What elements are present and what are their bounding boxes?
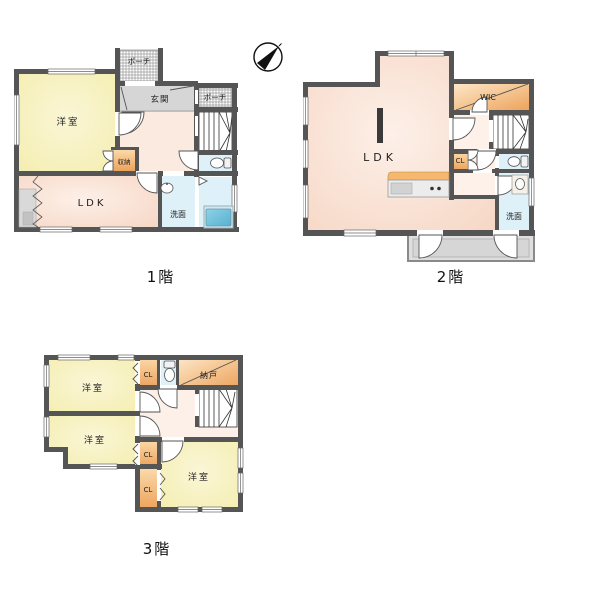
north-arrow-icon — [250, 38, 288, 76]
label-ldk-1f: LDK — [78, 198, 107, 209]
label-yoshitsu-1f: 洋室 — [56, 116, 79, 128]
label-genkan: 玄関 — [150, 94, 169, 105]
bathtub-icon — [204, 206, 233, 228]
stairs-icon-1f — [199, 112, 232, 152]
toilet-icon-3f — [164, 361, 175, 382]
floor2-caption: 2階 — [416, 266, 486, 287]
label-senmen-1f: 洗面 — [170, 209, 186, 219]
floor3-caption: 3階 — [122, 538, 192, 559]
kitchen-counter-icon-2f — [388, 172, 449, 197]
label-porch-right: ポーチ — [204, 93, 227, 102]
label-yoshitsu2-3f: 洋室 — [84, 434, 106, 446]
label-cl-2f: CL — [456, 157, 465, 165]
floor1-plan: 洋室 LDK 玄関 ポーチ ポーチ 収納 洗面 — [14, 44, 242, 238]
label-cl-mid: CL — [144, 451, 153, 459]
label-senmen-2f: 洗面 — [506, 211, 522, 221]
stairs-icon-3f — [199, 389, 237, 427]
toilet-icon-2f — [508, 156, 528, 167]
floor3-plan: 洋室 洋室 洋室 CL CL CL 納戸 — [42, 350, 246, 516]
label-cl-low: CL — [144, 486, 153, 494]
sink-icon-2f — [512, 175, 528, 194]
floorplan-page: 洋室 LDK 玄関 ポーチ ポーチ 収納 洗面 — [0, 0, 600, 600]
label-porch-top: ポーチ — [128, 57, 151, 66]
label-wic: WIC — [480, 93, 496, 102]
stairs-icon-2f — [493, 115, 529, 149]
floor2-plan: LDK WIC CL 洗面 — [303, 48, 539, 264]
toilet-icon-1f — [211, 158, 232, 168]
label-shuno: 収納 — [118, 157, 131, 166]
label-yoshitsu3-3f: 洋室 — [188, 471, 210, 483]
label-ldk-2f: LDK — [363, 151, 397, 164]
label-yoshitsu1-3f: 洋室 — [82, 382, 104, 394]
sink-icon-1f — [161, 183, 173, 193]
label-cl-top: CL — [144, 371, 153, 379]
floor1-caption: 1階 — [126, 266, 196, 287]
label-nando: 納戸 — [200, 370, 218, 380]
